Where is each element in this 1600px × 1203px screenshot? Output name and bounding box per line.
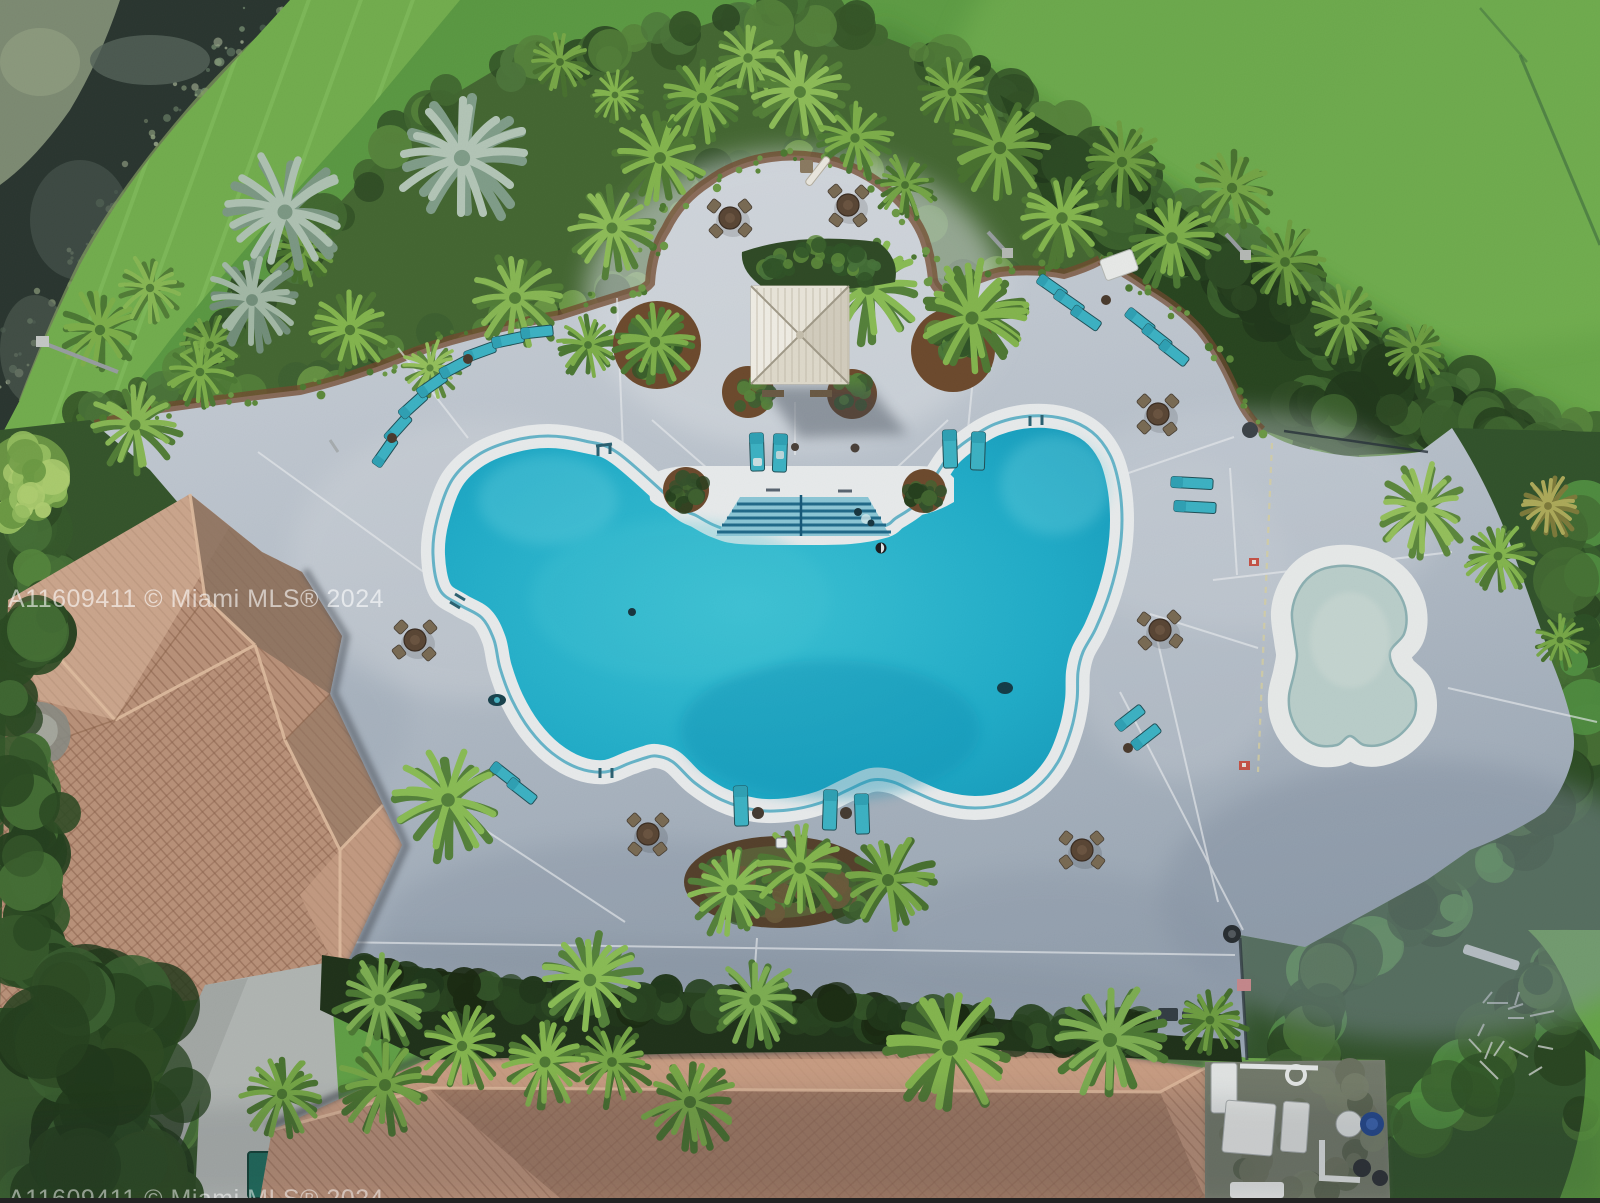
svg-text:A11609411 © Miami MLS® 2024: A11609411 © Miami MLS® 2024 [8,585,384,613]
svg-text:A11609411 © Miami MLS® 2024: A11609411 © Miami MLS® 2024 [8,1185,384,1198]
